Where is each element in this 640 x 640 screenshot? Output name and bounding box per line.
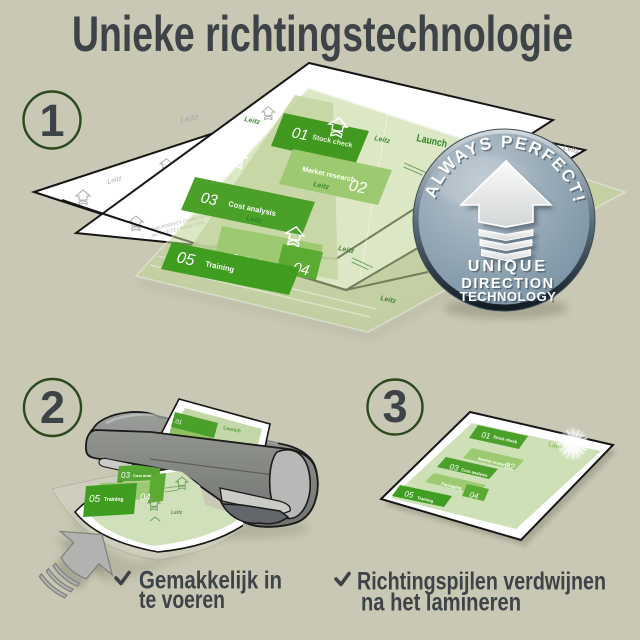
svg-text:1: 1: [39, 95, 64, 146]
svg-text:01: 01: [290, 124, 310, 144]
svg-text:03: 03: [121, 471, 130, 480]
svg-text:3: 3: [382, 381, 407, 432]
svg-text:te voeren: te voeren: [139, 586, 225, 614]
svg-text:na het lamineren: na het lamineren: [361, 589, 521, 617]
svg-text:Leitz: Leitz: [171, 510, 183, 516]
svg-text:TECHNOLOGY: TECHNOLOGY: [460, 289, 557, 304]
svg-text:04: 04: [140, 492, 151, 503]
svg-text:05: 05: [175, 249, 196, 269]
svg-text:UNIQUE: UNIQUE: [468, 258, 548, 275]
svg-text:05: 05: [89, 494, 101, 505]
svg-text:2: 2: [40, 382, 65, 433]
svg-text:Training: Training: [104, 497, 123, 503]
svg-text:Unieke richtingstechnologie: Unieke richtingstechnologie: [72, 6, 573, 62]
svg-text:02: 02: [347, 177, 368, 197]
